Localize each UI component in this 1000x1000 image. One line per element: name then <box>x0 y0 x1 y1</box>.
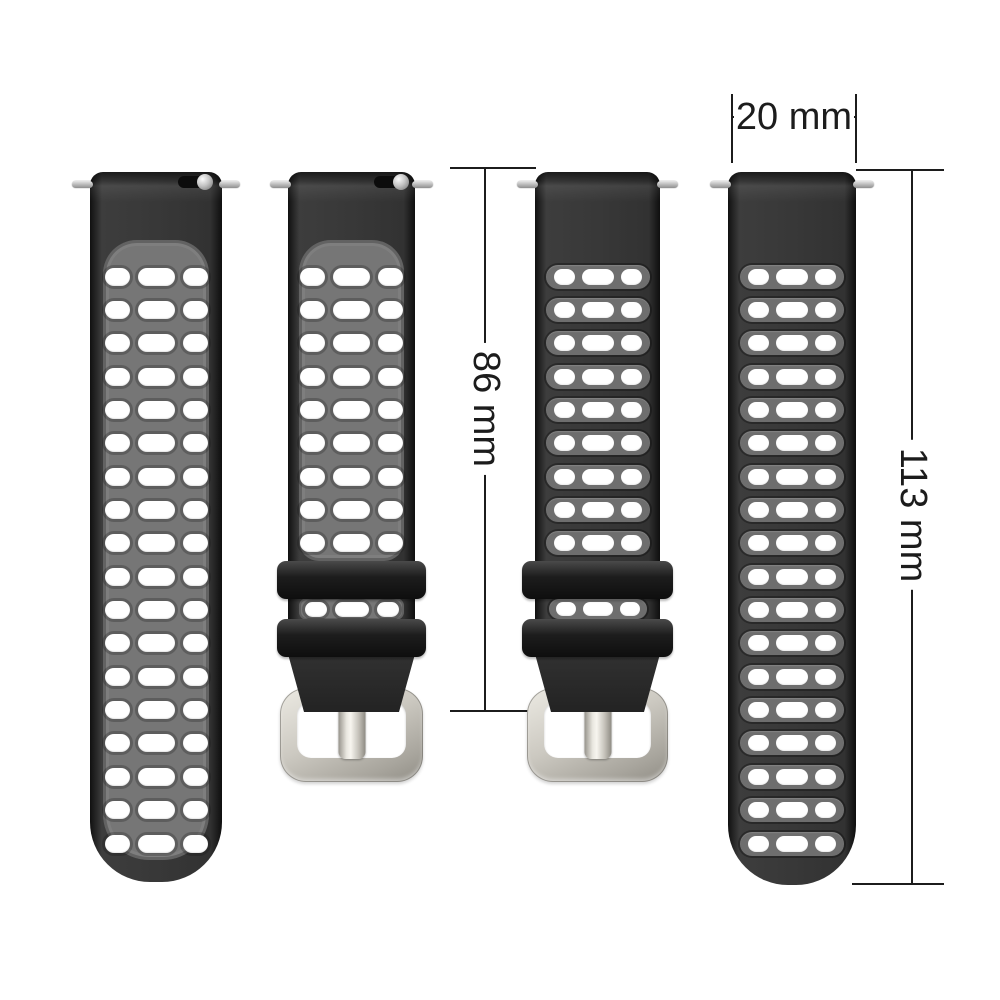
spring-bar-pin-left <box>270 181 291 188</box>
hole-row <box>546 427 650 460</box>
strap-hole <box>183 601 208 619</box>
strap-hole <box>776 836 808 852</box>
strap-hole <box>815 702 836 718</box>
strap-hole <box>138 768 175 786</box>
strap-hole <box>621 269 642 285</box>
strap-hole <box>105 434 130 452</box>
strap-hole <box>815 269 836 285</box>
strap-hole <box>582 369 614 385</box>
hole-rows <box>299 240 404 560</box>
strap-hole <box>776 702 808 718</box>
strap-hole <box>183 468 208 486</box>
strap-hole <box>300 401 325 419</box>
strap-hole <box>378 401 403 419</box>
hole-row <box>105 727 208 760</box>
hole-row <box>546 260 650 293</box>
strap-hole <box>138 334 175 352</box>
hole-row <box>740 560 844 593</box>
strap-hole <box>378 268 403 286</box>
strap-hole <box>748 635 769 651</box>
strap-hole <box>183 534 208 552</box>
strap-hole <box>776 335 808 351</box>
dim-86mm-tick-bottom <box>450 710 530 712</box>
strap-hole <box>138 501 175 519</box>
hole-row <box>105 660 208 693</box>
strap-hole <box>776 535 808 551</box>
quick-release-knob <box>393 174 409 190</box>
strap-hole <box>748 469 769 485</box>
strap-hole <box>183 501 208 519</box>
strap-hole <box>815 335 836 351</box>
strap-hole <box>183 401 208 419</box>
hole-row <box>105 593 208 626</box>
strap-hole <box>582 502 614 518</box>
strap-hole <box>333 368 370 386</box>
hole-row <box>740 460 844 493</box>
strap-hole <box>333 534 370 552</box>
keeper-loop-2 <box>522 619 673 657</box>
strap-hole <box>105 768 130 786</box>
strap-hole <box>815 502 836 518</box>
hole-row <box>300 327 403 360</box>
hole-row <box>105 693 208 726</box>
hole-row <box>300 493 403 526</box>
strap-hole <box>582 469 614 485</box>
strap-hole <box>621 369 642 385</box>
strap-hole <box>138 468 175 486</box>
strap-hole <box>105 334 130 352</box>
hole-row <box>105 327 208 360</box>
strap-hole <box>582 269 614 285</box>
strap-hole <box>333 434 370 452</box>
keeper-loop-1 <box>277 561 426 599</box>
strap-hole <box>621 502 642 518</box>
strap-hole <box>183 568 208 586</box>
strap-hole <box>776 635 808 651</box>
hole-row <box>300 393 403 426</box>
strap-hole <box>377 602 399 617</box>
strap-hole <box>776 435 808 451</box>
strap-hole <box>138 801 175 819</box>
strap-hole <box>378 468 403 486</box>
strap-hole <box>554 302 575 318</box>
strap-hole <box>300 368 325 386</box>
hole-row <box>740 493 844 526</box>
strap-hole <box>776 302 808 318</box>
hole-groove <box>740 798 844 822</box>
hole-row <box>105 293 208 326</box>
hole-row <box>105 427 208 460</box>
hole-groove <box>740 665 844 689</box>
hole-row <box>300 260 403 293</box>
hole-row <box>105 794 208 827</box>
hole-groove <box>740 765 844 789</box>
strap-hole <box>138 534 175 552</box>
strap-hole <box>815 469 836 485</box>
hole-row <box>546 527 650 560</box>
strap-hole <box>815 535 836 551</box>
strap-hole <box>815 635 836 651</box>
hole-row <box>740 760 844 793</box>
strap-hole <box>138 268 175 286</box>
strap-hole <box>815 769 836 785</box>
strap-hole <box>138 668 175 686</box>
strap-hole <box>583 602 613 616</box>
strap-hole <box>105 534 130 552</box>
strap-hole <box>183 668 208 686</box>
strap-buckle-gray <box>288 172 415 712</box>
strap-hole <box>621 435 642 451</box>
strap-hole <box>748 769 769 785</box>
strap-hole <box>621 302 642 318</box>
strap-long-black <box>728 172 856 885</box>
strap-buckle-black <box>535 172 660 712</box>
strap-inner-panel <box>103 240 209 860</box>
strap-hole <box>105 501 130 519</box>
strap-hole <box>105 368 130 386</box>
hole-row <box>300 293 403 326</box>
hole-row <box>740 727 844 760</box>
strap-hole <box>333 268 370 286</box>
strap-hole <box>815 836 836 852</box>
dim-113mm-tick-top <box>856 169 944 171</box>
keeper-loop-2 <box>277 619 426 657</box>
spring-bar-pin-right <box>657 181 678 188</box>
hole-groove <box>740 265 844 289</box>
strap-hole <box>748 402 769 418</box>
strap-hole <box>748 702 769 718</box>
strap-hole <box>582 402 614 418</box>
strap-hole <box>183 301 208 319</box>
hole-row <box>740 527 844 560</box>
strap-hole <box>815 735 836 751</box>
strap-hole <box>554 502 575 518</box>
hole-groove <box>546 431 650 455</box>
hole-groove <box>740 498 844 522</box>
hole-row <box>740 794 844 827</box>
hole-groove <box>740 698 844 722</box>
quick-release-slider <box>178 176 204 188</box>
strap-hole <box>776 735 808 751</box>
strap-hole <box>621 469 642 485</box>
hole-groove <box>740 631 844 655</box>
strap-hole <box>300 434 325 452</box>
strap-hole <box>554 469 575 485</box>
hole-rows <box>535 172 660 560</box>
strap-hole <box>138 835 175 853</box>
hole-rows <box>728 172 856 860</box>
strap-hole <box>748 802 769 818</box>
strap-hole <box>105 734 130 752</box>
strap-hole <box>183 268 208 286</box>
hole-row <box>546 360 650 393</box>
hole-groove <box>740 832 844 856</box>
strap-hole <box>378 368 403 386</box>
strap-hole <box>748 502 769 518</box>
strap-hole <box>815 602 836 618</box>
hole-row <box>105 493 208 526</box>
hole-groove <box>740 365 844 389</box>
strap-hole <box>776 802 808 818</box>
strap-hole <box>776 269 808 285</box>
strap-hole <box>138 601 175 619</box>
dim-20mm-label: 20 mm <box>731 98 857 136</box>
strap-hole <box>815 402 836 418</box>
strap-hole <box>815 369 836 385</box>
strap-hole <box>105 268 130 286</box>
hole-row <box>740 627 844 660</box>
hole-groove <box>546 498 650 522</box>
hole-row <box>105 527 208 560</box>
strap-hole <box>554 369 575 385</box>
hole-groove <box>546 465 650 489</box>
dim-113mm-label: 113 mm <box>893 440 933 590</box>
hole-groove <box>740 331 844 355</box>
strap-hole <box>335 602 369 617</box>
hole-row <box>300 360 403 393</box>
strap-hole <box>748 569 769 585</box>
strap-hole <box>815 435 836 451</box>
strap-hole <box>776 402 808 418</box>
strap-hole <box>748 335 769 351</box>
hole-row <box>740 427 844 460</box>
hole-groove <box>546 398 650 422</box>
strap-hole <box>815 802 836 818</box>
hole-row <box>300 427 403 460</box>
strap-hole <box>554 535 575 551</box>
strap-hole <box>582 435 614 451</box>
hole-groove <box>740 731 844 755</box>
hole-groove <box>549 599 647 619</box>
strap-hole <box>300 301 325 319</box>
strap-hole <box>620 602 640 616</box>
strap-hole <box>748 535 769 551</box>
strap-hole <box>183 835 208 853</box>
strap-hole <box>776 469 808 485</box>
strap-hole <box>183 634 208 652</box>
dim-86mm-tick-top <box>450 167 536 169</box>
hole-row <box>740 593 844 626</box>
strap-hole <box>105 835 130 853</box>
hole-row <box>546 327 650 360</box>
strap-hole <box>748 435 769 451</box>
dim-20mm-text: 20 mm <box>734 96 854 138</box>
strap-hole <box>305 602 327 617</box>
hole-row <box>740 327 844 360</box>
strap-hole <box>776 369 808 385</box>
strap-hole <box>105 701 130 719</box>
hole-row <box>740 260 844 293</box>
spring-bar-pin-left <box>72 181 93 188</box>
strap-hole <box>378 501 403 519</box>
strap-hole <box>105 568 130 586</box>
strap-hole <box>776 602 808 618</box>
hole-groove <box>546 365 650 389</box>
hole-row <box>546 460 650 493</box>
hole-row <box>546 393 650 426</box>
strap-hole <box>554 269 575 285</box>
spring-bar-pin-right <box>412 181 433 188</box>
strap-hole <box>554 335 575 351</box>
hole-row <box>740 360 844 393</box>
hole-row <box>740 293 844 326</box>
hole-row <box>105 827 208 860</box>
strap-long-gray <box>90 172 222 882</box>
strap-hole <box>554 435 575 451</box>
strap-hole <box>138 568 175 586</box>
hole-row <box>105 393 208 426</box>
strap-hole <box>333 401 370 419</box>
hole-row <box>740 827 844 860</box>
strap-tail <box>535 654 660 712</box>
strap-hole <box>105 401 130 419</box>
quick-release-slider <box>374 176 400 188</box>
hole-row <box>105 260 208 293</box>
strap-hole <box>815 669 836 685</box>
strap-hole <box>183 701 208 719</box>
watch-strap-dimension-diagram: 20 mm 86 mm 113 mm <box>0 0 1000 1000</box>
hole-groove <box>740 598 844 622</box>
hole-groove <box>740 298 844 322</box>
strap-hole <box>748 669 769 685</box>
strap-hole <box>582 335 614 351</box>
strap-hole <box>378 434 403 452</box>
strap-hole <box>105 301 130 319</box>
hole-row <box>546 493 650 526</box>
strap-hole <box>183 768 208 786</box>
strap-hole <box>815 569 836 585</box>
strap-hole <box>378 334 403 352</box>
hole-groove <box>740 431 844 455</box>
strap-hole <box>300 334 325 352</box>
strap-hole <box>333 301 370 319</box>
strap-hole <box>582 535 614 551</box>
hole-row <box>105 627 208 660</box>
strap-hole <box>748 602 769 618</box>
dim-113mm-tick-bottom <box>852 883 944 885</box>
strap-hole <box>300 468 325 486</box>
strap-hole <box>105 668 130 686</box>
strap-hole <box>378 534 403 552</box>
hole-row <box>740 393 844 426</box>
strap-hole <box>138 701 175 719</box>
strap-hole <box>138 368 175 386</box>
strap-hole <box>776 569 808 585</box>
strap-hole <box>333 468 370 486</box>
strap-hole <box>138 401 175 419</box>
hole-groove <box>740 398 844 422</box>
strap-hole <box>183 434 208 452</box>
strap-hole <box>621 335 642 351</box>
strap-hole <box>300 268 325 286</box>
strap-hole <box>138 634 175 652</box>
strap-hole <box>105 801 130 819</box>
hole-row <box>105 560 208 593</box>
strap-hole <box>748 269 769 285</box>
strap-hole <box>776 502 808 518</box>
strap-inner-panel <box>299 240 404 561</box>
strap-hole <box>138 434 175 452</box>
quick-release-knob <box>197 174 213 190</box>
keeper-loop-1 <box>522 561 673 599</box>
strap-hole <box>776 669 808 685</box>
hole-row <box>300 527 403 560</box>
spring-bar-pin-right <box>853 181 874 188</box>
strap-hole <box>183 334 208 352</box>
hole-rows <box>103 240 209 860</box>
hole-row <box>300 460 403 493</box>
dim-86mm-label: 86 mm <box>466 343 506 475</box>
strap-hole <box>621 535 642 551</box>
hole-groove <box>546 331 650 355</box>
strap-hole <box>138 734 175 752</box>
strap-hole <box>183 801 208 819</box>
hole-row <box>105 760 208 793</box>
spring-bar-pin-right <box>219 181 240 188</box>
strap-hole <box>748 369 769 385</box>
strap-hole <box>815 302 836 318</box>
strap-hole <box>183 368 208 386</box>
hole-groove <box>740 531 844 555</box>
strap-hole <box>748 836 769 852</box>
hole-groove <box>546 298 650 322</box>
hole-row <box>546 293 650 326</box>
strap-hole <box>105 634 130 652</box>
hole-groove <box>546 531 650 555</box>
hole-row <box>105 360 208 393</box>
hole-groove <box>546 265 650 289</box>
hole-row <box>740 693 844 726</box>
strap-hole <box>333 501 370 519</box>
strap-hole <box>105 468 130 486</box>
hole-row <box>740 660 844 693</box>
strap-hole <box>300 534 325 552</box>
strap-hole <box>333 334 370 352</box>
strap-hole <box>554 402 575 418</box>
strap-hole <box>138 301 175 319</box>
strap-hole <box>378 301 403 319</box>
strap-tail <box>288 654 415 712</box>
strap-hole <box>621 402 642 418</box>
strap-hole <box>748 302 769 318</box>
strap-hole <box>105 601 130 619</box>
hole-row <box>105 460 208 493</box>
hole-groove <box>740 565 844 589</box>
strap-hole <box>776 769 808 785</box>
strap-hole <box>300 501 325 519</box>
hole-groove <box>740 465 844 489</box>
strap-hole <box>748 735 769 751</box>
strap-hole <box>183 734 208 752</box>
strap-hole <box>556 602 576 616</box>
strap-hole <box>582 302 614 318</box>
